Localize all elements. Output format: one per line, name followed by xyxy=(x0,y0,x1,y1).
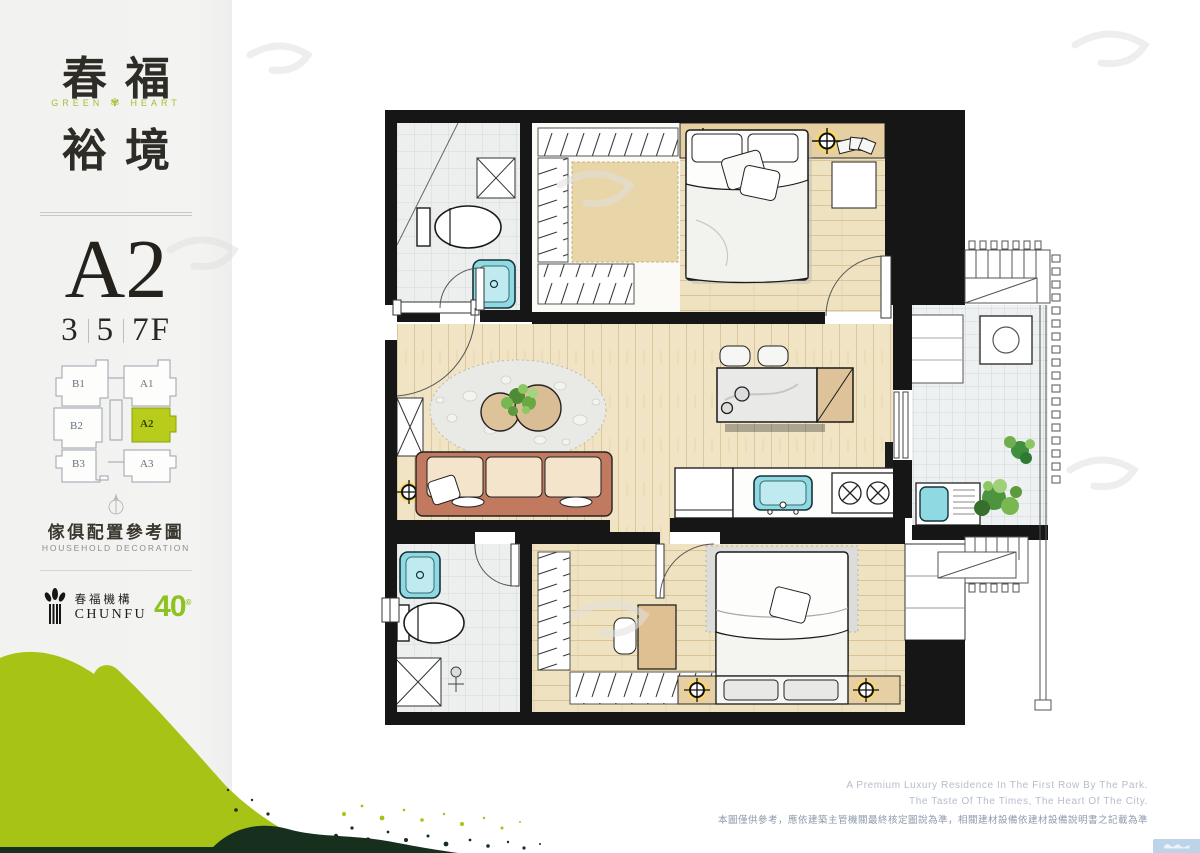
divider-single xyxy=(40,570,192,571)
louver-teeth-right xyxy=(1052,255,1060,483)
louver-teeth-top xyxy=(969,241,1041,249)
project-title-bottom: 裕境 xyxy=(0,114,232,179)
tagline-line1: A Premium Luxury Residence In The First … xyxy=(846,780,1148,791)
stove xyxy=(832,473,896,513)
disclaimer-text: 本圖僅供參考，應依建築主管機關最終核定圖說為準，相關建材設備依建材設備說明書之記… xyxy=(718,812,1148,826)
pillow xyxy=(724,680,778,700)
floor-separator xyxy=(88,319,89,343)
toilet-tank xyxy=(417,208,430,246)
bath2-door-leaf xyxy=(511,544,519,586)
floor-7f: 7F xyxy=(132,312,171,349)
dining-stool xyxy=(758,346,788,366)
nightstand xyxy=(832,162,876,208)
floor-3: 3 xyxy=(61,312,80,349)
poster-page: { "sidebar": { "title_top": "春福", "title… xyxy=(0,0,1200,853)
toilet-bowl xyxy=(404,603,464,643)
floor-plan xyxy=(380,100,1080,730)
project-subtitle: GREEN ✾ HEART xyxy=(0,96,232,109)
dining-table-marble xyxy=(717,368,817,422)
entrance-door-leaf xyxy=(397,302,475,313)
pillow xyxy=(784,680,838,700)
keyplan-label-b2: B2 xyxy=(70,420,83,432)
subtitle-heart: HEART xyxy=(130,98,180,108)
unit-floors: 357F xyxy=(0,312,232,349)
dining-stool xyxy=(720,346,750,366)
keyplan-label-b1: B1 xyxy=(72,378,85,390)
tagline-line2: The Taste Of The Times, The Heart Of The… xyxy=(909,796,1148,807)
kitchen xyxy=(675,468,899,518)
louver-teeth-bottom xyxy=(969,584,1019,592)
floor-5: 5 xyxy=(97,312,116,349)
flower-icon: ✾ xyxy=(110,96,123,109)
storage-column xyxy=(910,315,963,383)
keyplan-label-b3: B3 xyxy=(72,458,85,470)
keyplan-label-a2: A2 xyxy=(140,418,153,430)
desk-chair xyxy=(614,618,636,654)
wave-logo-icon xyxy=(1164,844,1190,849)
floor-separator xyxy=(123,319,124,343)
keyplan-label-a3: A3 xyxy=(140,458,153,470)
compass-icon xyxy=(103,492,129,518)
keyplan-outline xyxy=(44,356,188,484)
subtitle-green: GREEN xyxy=(51,98,103,108)
balcony-sliding-door xyxy=(894,392,908,458)
washing-machine xyxy=(980,316,1032,364)
caption-en: HOUSEHOLD DECORATION xyxy=(0,543,232,553)
corner-watermark-badge xyxy=(1153,839,1200,853)
toilet-bowl xyxy=(435,206,501,248)
sofa-cushion xyxy=(545,457,601,497)
caption-zh: 傢俱配置參考圖 xyxy=(0,518,232,543)
bath1-door-leaf xyxy=(476,268,484,310)
unit-code: A2 xyxy=(0,228,232,312)
divider-double xyxy=(40,212,192,216)
keyplan-unit-a2-shape xyxy=(132,408,176,442)
keyplan-label-a1: A1 xyxy=(140,378,153,390)
master-door-leaf xyxy=(881,256,891,318)
desk xyxy=(638,605,676,669)
building-keyplan: B1 B2 B3 A1 A2 A3 xyxy=(44,356,188,484)
bedroom2-door-leaf xyxy=(656,544,664,598)
sofa-cushion xyxy=(486,457,542,497)
